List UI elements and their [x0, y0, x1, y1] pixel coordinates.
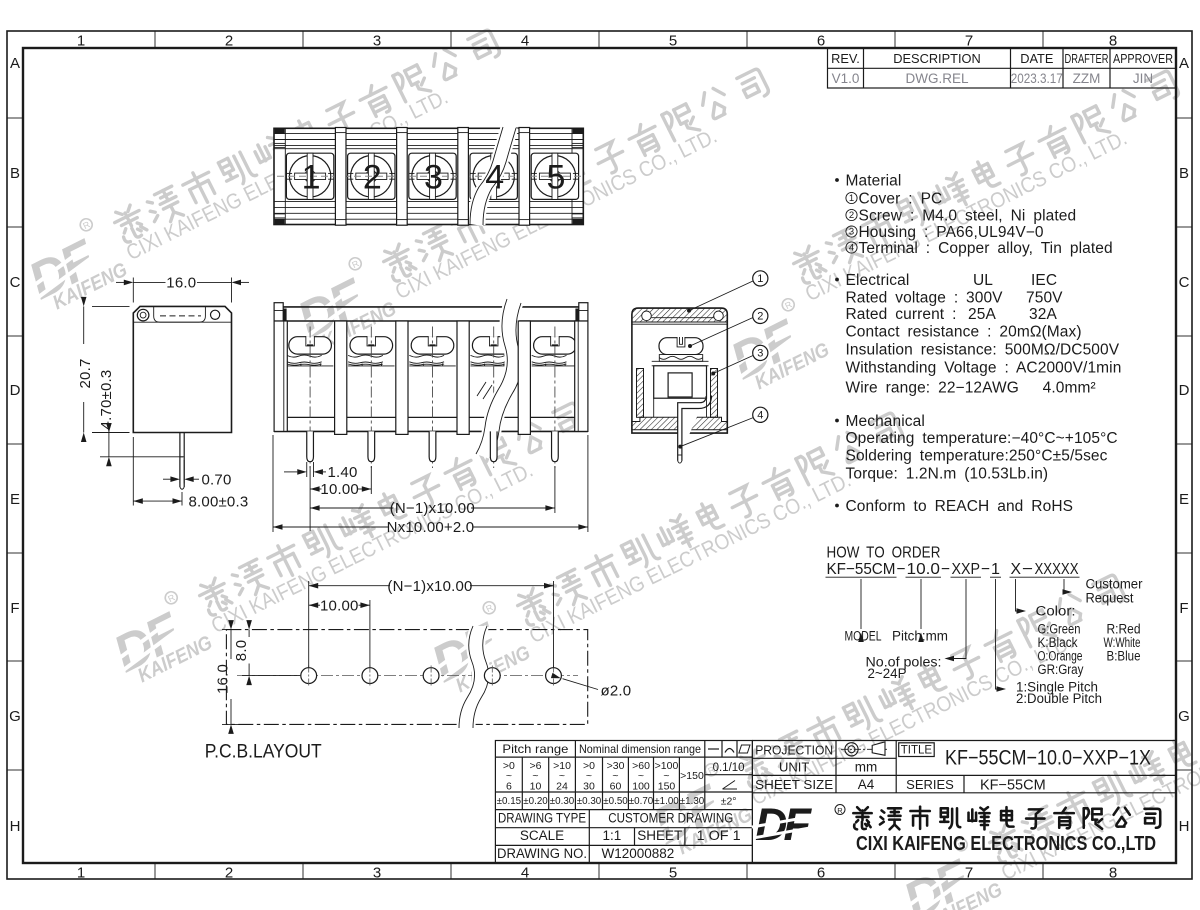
- svg-text:A: A: [1179, 55, 1189, 72]
- svg-text:UL: UL: [973, 272, 993, 289]
- svg-text:DATE: DATE: [1020, 51, 1053, 66]
- svg-text:−: −: [981, 561, 990, 578]
- svg-text:B:Blue: B:Blue: [1107, 649, 1141, 664]
- svg-text:7: 7: [965, 33, 973, 50]
- svg-text:PROJECTION: PROJECTION: [755, 743, 833, 758]
- svg-text:24: 24: [556, 781, 568, 793]
- svg-text:Housing : PA66,UL94V−0: Housing : PA66,UL94V−0: [859, 224, 1044, 241]
- svg-text:4: 4: [849, 243, 854, 254]
- svg-text:SCALE: SCALE: [520, 828, 564, 843]
- svg-text:ø2.0: ø2.0: [601, 683, 632, 700]
- svg-text:XXXXX: XXXXX: [1035, 561, 1079, 578]
- svg-text:Torque: 1.2N.m (10.53Lb.in): Torque: 1.2N.m (10.53Lb.in): [846, 466, 1049, 483]
- svg-text:3: 3: [424, 159, 443, 197]
- svg-text:3: 3: [373, 33, 381, 50]
- svg-text:Insulation resistance: 500MΩ/D: Insulation resistance: 500MΩ/DC500V: [846, 342, 1120, 359]
- svg-text:HOW TO ORDER: HOW TO ORDER: [827, 545, 941, 562]
- svg-text:A: A: [10, 55, 20, 72]
- svg-text:DRAWING TYPE: DRAWING TYPE: [498, 811, 586, 826]
- svg-text:±2°: ±2°: [721, 796, 737, 808]
- svg-text:Withstanding Voltage : AC2000V: Withstanding Voltage : AC2000V/1min: [846, 360, 1122, 377]
- svg-text:Mechanical: Mechanical: [846, 413, 925, 430]
- svg-text:7: 7: [965, 865, 973, 882]
- svg-text:G: G: [9, 708, 21, 725]
- svg-text:10: 10: [530, 781, 542, 793]
- svg-text:Soldering temperature:250°C±5/: Soldering temperature:250°C±5/5sec: [846, 448, 1108, 465]
- svg-text:H: H: [1179, 818, 1190, 835]
- svg-text:H: H: [10, 818, 21, 835]
- svg-text:16.0: 16.0: [166, 275, 196, 292]
- svg-text:4: 4: [521, 33, 529, 50]
- svg-text:1: 1: [991, 561, 1000, 578]
- svg-text:1: 1: [77, 865, 85, 882]
- svg-text:DWG.REL: DWG.REL: [905, 71, 968, 86]
- svg-text:±1.00: ±1.00: [654, 796, 679, 807]
- svg-text:2: 2: [363, 159, 382, 197]
- svg-text:3: 3: [373, 865, 381, 882]
- svg-text:60: 60: [610, 781, 622, 793]
- svg-text:6: 6: [817, 33, 825, 50]
- svg-text:A4: A4: [858, 777, 875, 792]
- svg-text:100: 100: [632, 781, 650, 793]
- svg-text:X: X: [1011, 561, 1022, 578]
- svg-text:8.0: 8.0: [233, 640, 250, 661]
- svg-text:Material: Material: [846, 173, 902, 190]
- svg-text:D: D: [10, 382, 21, 399]
- svg-text:KF−55CM−10.0−XXP−1X: KF−55CM−10.0−XXP−1X: [945, 747, 1151, 770]
- svg-text:R: R: [837, 806, 843, 815]
- svg-text:1: 1: [302, 159, 321, 197]
- svg-text:750V: 750V: [1026, 290, 1063, 307]
- svg-text:Electrical: Electrical: [846, 272, 910, 289]
- svg-text:C: C: [1179, 274, 1190, 291]
- svg-text:10.0: 10.0: [907, 561, 941, 578]
- svg-text:10.00: 10.00: [320, 597, 359, 614]
- svg-text:±0.50: ±0.50: [603, 796, 628, 807]
- svg-text:CUSTOMER DRAWING: CUSTOMER DRAWING: [608, 811, 733, 826]
- svg-text:Conform to REACH and RoHS: Conform to REACH and RoHS: [846, 498, 1074, 515]
- svg-text:Operating temperature:−40°C~+1: Operating temperature:−40°C~+105°C: [846, 430, 1118, 447]
- svg-text:2:Double Pitch: 2:Double Pitch: [1016, 691, 1102, 706]
- svg-text:F: F: [10, 600, 19, 617]
- svg-text:8.00±0.3: 8.00±0.3: [189, 493, 249, 510]
- svg-text:16.0: 16.0: [215, 664, 232, 694]
- svg-text:ZZM: ZZM: [1073, 71, 1101, 86]
- svg-text:GR:Gray: GR:Gray: [1038, 662, 1084, 677]
- svg-text:±1.30: ±1.30: [680, 796, 705, 807]
- svg-text:G: G: [1178, 708, 1190, 725]
- svg-text:300V: 300V: [966, 290, 1003, 307]
- svg-text:mm: mm: [855, 760, 878, 775]
- svg-text:2~24P: 2~24P: [868, 666, 907, 681]
- svg-text:6: 6: [817, 865, 825, 882]
- svg-text:DESCRIPTION: DESCRIPTION: [893, 51, 980, 66]
- svg-text:5: 5: [669, 33, 677, 50]
- svg-text:(N−1)x10.00: (N−1)x10.00: [390, 500, 475, 517]
- svg-text:JIN: JIN: [1133, 71, 1153, 86]
- svg-text:V1.0: V1.0: [832, 71, 860, 86]
- svg-text:±0.30: ±0.30: [550, 796, 575, 807]
- svg-text:B: B: [10, 165, 20, 182]
- svg-text:±0.15: ±0.15: [497, 796, 522, 807]
- svg-text:−: −: [1022, 561, 1033, 578]
- svg-text:2: 2: [225, 865, 233, 882]
- svg-text:F: F: [1179, 600, 1188, 617]
- svg-text:E: E: [10, 491, 20, 508]
- svg-text:Wire range: 22−12AWG 4.0mm²: Wire range: 22−12AWG 4.0mm²: [846, 380, 1096, 397]
- svg-text:D: D: [1179, 382, 1190, 399]
- svg-text:MODEL: MODEL: [845, 629, 882, 644]
- svg-text:SHEET: SHEET: [637, 828, 682, 843]
- svg-text:Screw : M4.0 steel, Ni plated: Screw : M4.0 steel, Ni plated: [859, 208, 1077, 225]
- svg-text:Pitch range: Pitch range: [502, 742, 568, 756]
- svg-text:3: 3: [757, 348, 763, 360]
- svg-text:1: 1: [77, 33, 85, 50]
- svg-text:B: B: [1179, 165, 1189, 182]
- svg-text:−: −: [941, 561, 950, 578]
- svg-text:Cover : PC: Cover : PC: [859, 191, 943, 208]
- svg-text:>150: >150: [680, 770, 704, 782]
- svg-text:Pitch:mm: Pitch:mm: [892, 629, 948, 644]
- svg-text:−: −: [897, 561, 906, 578]
- svg-text:DRAFTER: DRAFTER: [1065, 51, 1109, 66]
- svg-text:3: 3: [849, 227, 854, 238]
- svg-text:±0.30: ±0.30: [577, 796, 602, 807]
- svg-text:UNIT: UNIT: [779, 760, 809, 775]
- svg-text:TITLE: TITLE: [901, 744, 933, 756]
- svg-text:Rated voltage :: Rated voltage :: [846, 290, 959, 307]
- svg-text:1 OF 1: 1 OF 1: [697, 828, 741, 843]
- svg-text:Contact resistance : 20mΩ(Max): Contact resistance : 20mΩ(Max): [846, 324, 1082, 341]
- svg-text:25A: 25A: [968, 306, 996, 323]
- svg-text:32A: 32A: [1029, 306, 1057, 323]
- svg-text:REV.: REV.: [831, 51, 860, 66]
- svg-text:8: 8: [1109, 865, 1117, 882]
- svg-text:KF−55CM: KF−55CM: [980, 778, 1046, 794]
- svg-text:C: C: [10, 274, 21, 291]
- svg-text:(N−1)x10.00: (N−1)x10.00: [387, 578, 472, 595]
- svg-text:2023.3.17: 2023.3.17: [1011, 71, 1063, 86]
- svg-text:0.1/10: 0.1/10: [713, 762, 745, 774]
- svg-text:2: 2: [757, 311, 763, 323]
- svg-text:±0.70: ±0.70: [629, 796, 654, 807]
- svg-text:SHEET SIZE: SHEET SIZE: [755, 777, 833, 792]
- svg-text:30: 30: [583, 781, 595, 793]
- svg-text:DRAWING NO.: DRAWING NO.: [497, 846, 587, 861]
- svg-text:20.7: 20.7: [77, 359, 94, 389]
- svg-text:Request: Request: [1086, 591, 1134, 606]
- svg-text:1: 1: [849, 193, 854, 204]
- svg-text:1: 1: [757, 273, 763, 285]
- svg-text:4: 4: [757, 410, 763, 422]
- svg-text:XXP: XXP: [952, 561, 981, 578]
- svg-text:Nx10.00+2.0: Nx10.00+2.0: [387, 519, 475, 536]
- svg-text:KF−55CM: KF−55CM: [827, 561, 896, 578]
- svg-text:Color:: Color:: [1036, 604, 1076, 619]
- svg-text:SERIES: SERIES: [906, 777, 954, 792]
- svg-text:E: E: [1179, 491, 1189, 508]
- svg-text:8: 8: [1109, 33, 1117, 50]
- svg-text:150: 150: [658, 781, 676, 793]
- svg-text:±0.20: ±0.20: [523, 796, 548, 807]
- svg-text:4: 4: [485, 159, 504, 197]
- svg-text:4.70±0.3: 4.70±0.3: [98, 370, 115, 430]
- svg-text:10.00: 10.00: [320, 481, 359, 498]
- svg-text:0.70: 0.70: [202, 471, 232, 488]
- svg-text:5: 5: [669, 865, 677, 882]
- svg-text:1:1: 1:1: [603, 828, 622, 843]
- svg-text:Customer: Customer: [1086, 577, 1143, 592]
- svg-text:IEC: IEC: [1031, 272, 1057, 289]
- svg-text:2: 2: [225, 33, 233, 50]
- svg-text:P.C.B.LAYOUT: P.C.B.LAYOUT: [205, 741, 322, 763]
- svg-text:CIXI KAIFENG ELECTRONICS CO.,L: CIXI KAIFENG ELECTRONICS CO.,LTD: [856, 833, 1156, 855]
- svg-text:Rated current :: Rated current :: [846, 306, 957, 323]
- svg-text:W12000882: W12000882: [602, 846, 675, 861]
- svg-text:APPROVER: APPROVER: [1113, 51, 1173, 66]
- svg-text:Nominal dimension range: Nominal dimension range: [579, 742, 701, 756]
- svg-text:Terminal : Copper alloy, Tin p: Terminal : Copper alloy, Tin plated: [859, 240, 1113, 257]
- svg-text:1.40: 1.40: [328, 464, 358, 481]
- svg-text:6: 6: [506, 781, 512, 793]
- svg-text:4: 4: [521, 865, 529, 882]
- svg-text:2: 2: [849, 210, 854, 221]
- svg-text:5: 5: [546, 159, 565, 197]
